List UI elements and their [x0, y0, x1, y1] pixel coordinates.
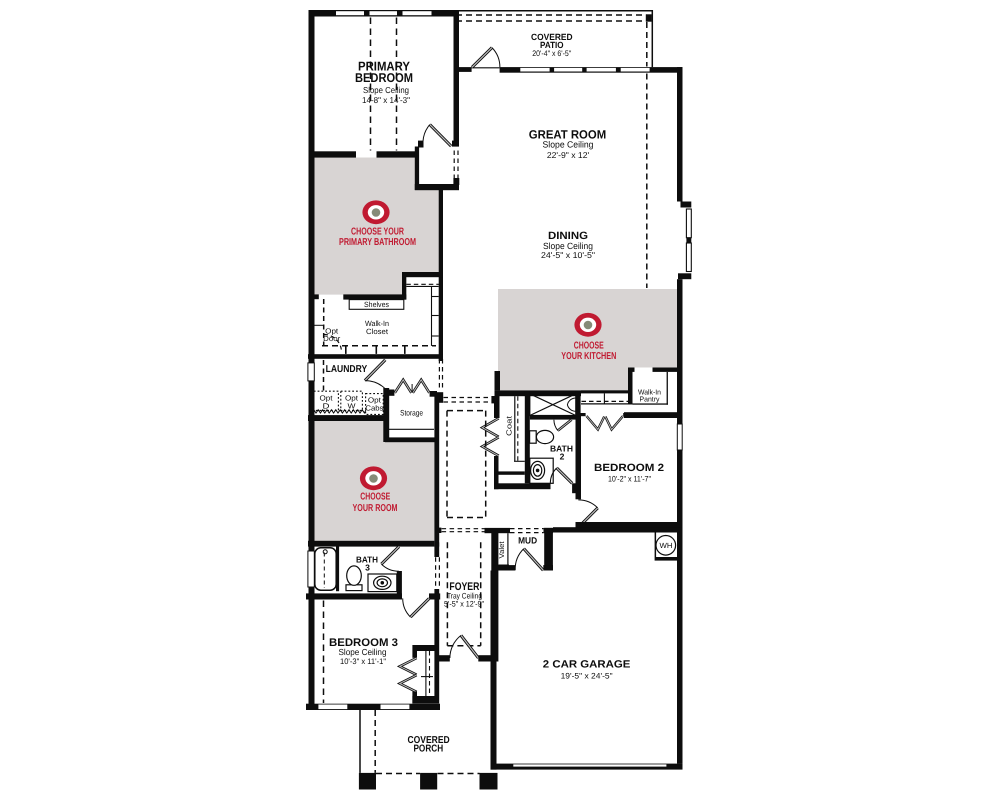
svg-text:Storage: Storage — [400, 408, 423, 417]
svg-text:WH: WH — [660, 541, 673, 550]
svg-text:24'-5" x 10'-5": 24'-5" x 10'-5" — [541, 250, 595, 260]
svg-text:YOUR KITCHEN: YOUR KITCHEN — [561, 351, 616, 362]
svg-text:Coat: Coat — [505, 416, 514, 436]
svg-text:Slope Ceiling: Slope Ceiling — [543, 140, 594, 150]
svg-text:PORCH: PORCH — [413, 743, 443, 754]
svg-text:W: W — [348, 401, 356, 410]
svg-text:YOUR ROOM: YOUR ROOM — [353, 503, 398, 514]
svg-text:10'-3" x 11'-1": 10'-3" x 11'-1" — [340, 657, 386, 666]
svg-text:Door: Door — [323, 334, 341, 343]
svg-text:2: 2 — [560, 452, 565, 462]
svg-text:3: 3 — [365, 563, 370, 573]
svg-text:BEDROOM 2: BEDROOM 2 — [594, 462, 664, 474]
svg-text:LAUNDRY: LAUNDRY — [326, 364, 368, 375]
svg-text:Valet: Valet — [497, 542, 506, 559]
svg-text:Cabs: Cabs — [365, 404, 383, 413]
svg-text:Shelves: Shelves — [364, 300, 389, 309]
svg-text:22'-9" x 12': 22'-9" x 12' — [547, 150, 590, 160]
svg-text:5'-5" x 12'-9": 5'-5" x 12'-9" — [444, 599, 484, 608]
svg-text:CHOOSE: CHOOSE — [574, 340, 604, 351]
svg-text:Slope Ceiling: Slope Ceiling — [363, 85, 409, 95]
svg-text:PRIMARY BATHROOM: PRIMARY BATHROOM — [339, 237, 416, 248]
svg-text:2 CAR GARAGE: 2 CAR GARAGE — [543, 659, 631, 671]
svg-text:D: D — [323, 401, 330, 410]
svg-text:Pantry: Pantry — [640, 394, 660, 403]
svg-text:Closet: Closet — [366, 327, 389, 336]
svg-text:10'-2" x 11'-7": 10'-2" x 11'-7" — [608, 475, 651, 484]
svg-text:MUD: MUD — [518, 535, 537, 545]
svg-text:20'-4" x 6'-5": 20'-4" x 6'-5" — [532, 49, 571, 58]
svg-text:14-8" x 14'-3": 14-8" x 14'-3" — [362, 95, 410, 105]
svg-text:19'-5" x 24'-5": 19'-5" x 24'-5" — [561, 672, 613, 681]
svg-text:Slope Ceiling: Slope Ceiling — [339, 647, 387, 657]
svg-text:CHOOSE: CHOOSE — [360, 491, 390, 502]
svg-text:BEDROOM: BEDROOM — [355, 70, 413, 85]
